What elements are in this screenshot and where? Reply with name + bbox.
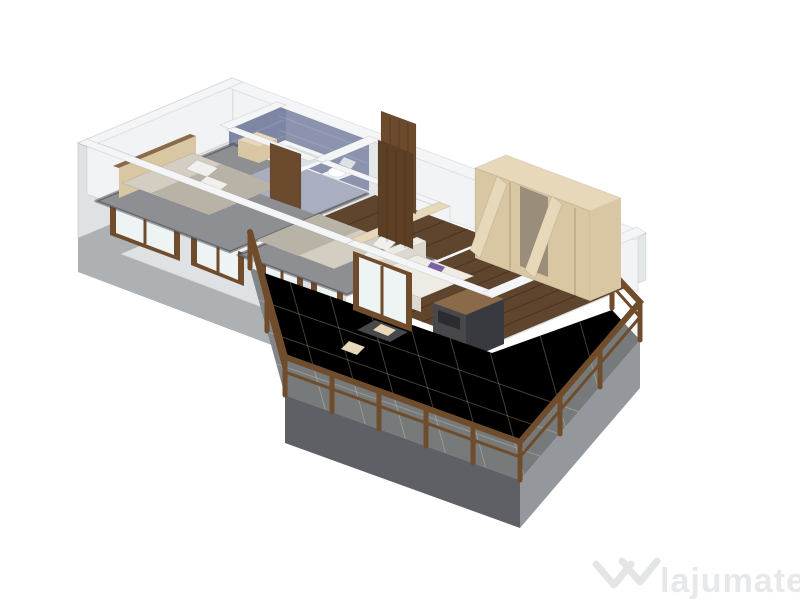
watermark: lajumate.ro [596, 561, 800, 600]
lajumate-logo-icon [596, 561, 657, 585]
bathroom-door [270, 143, 301, 209]
wardrobe-side [590, 198, 621, 301]
floorplan-image: lajumate.ro [0, 0, 800, 600]
watermark-brand-text: lajumate.ro [660, 562, 800, 600]
floorplan-scene: lajumate.ro [0, 0, 800, 600]
